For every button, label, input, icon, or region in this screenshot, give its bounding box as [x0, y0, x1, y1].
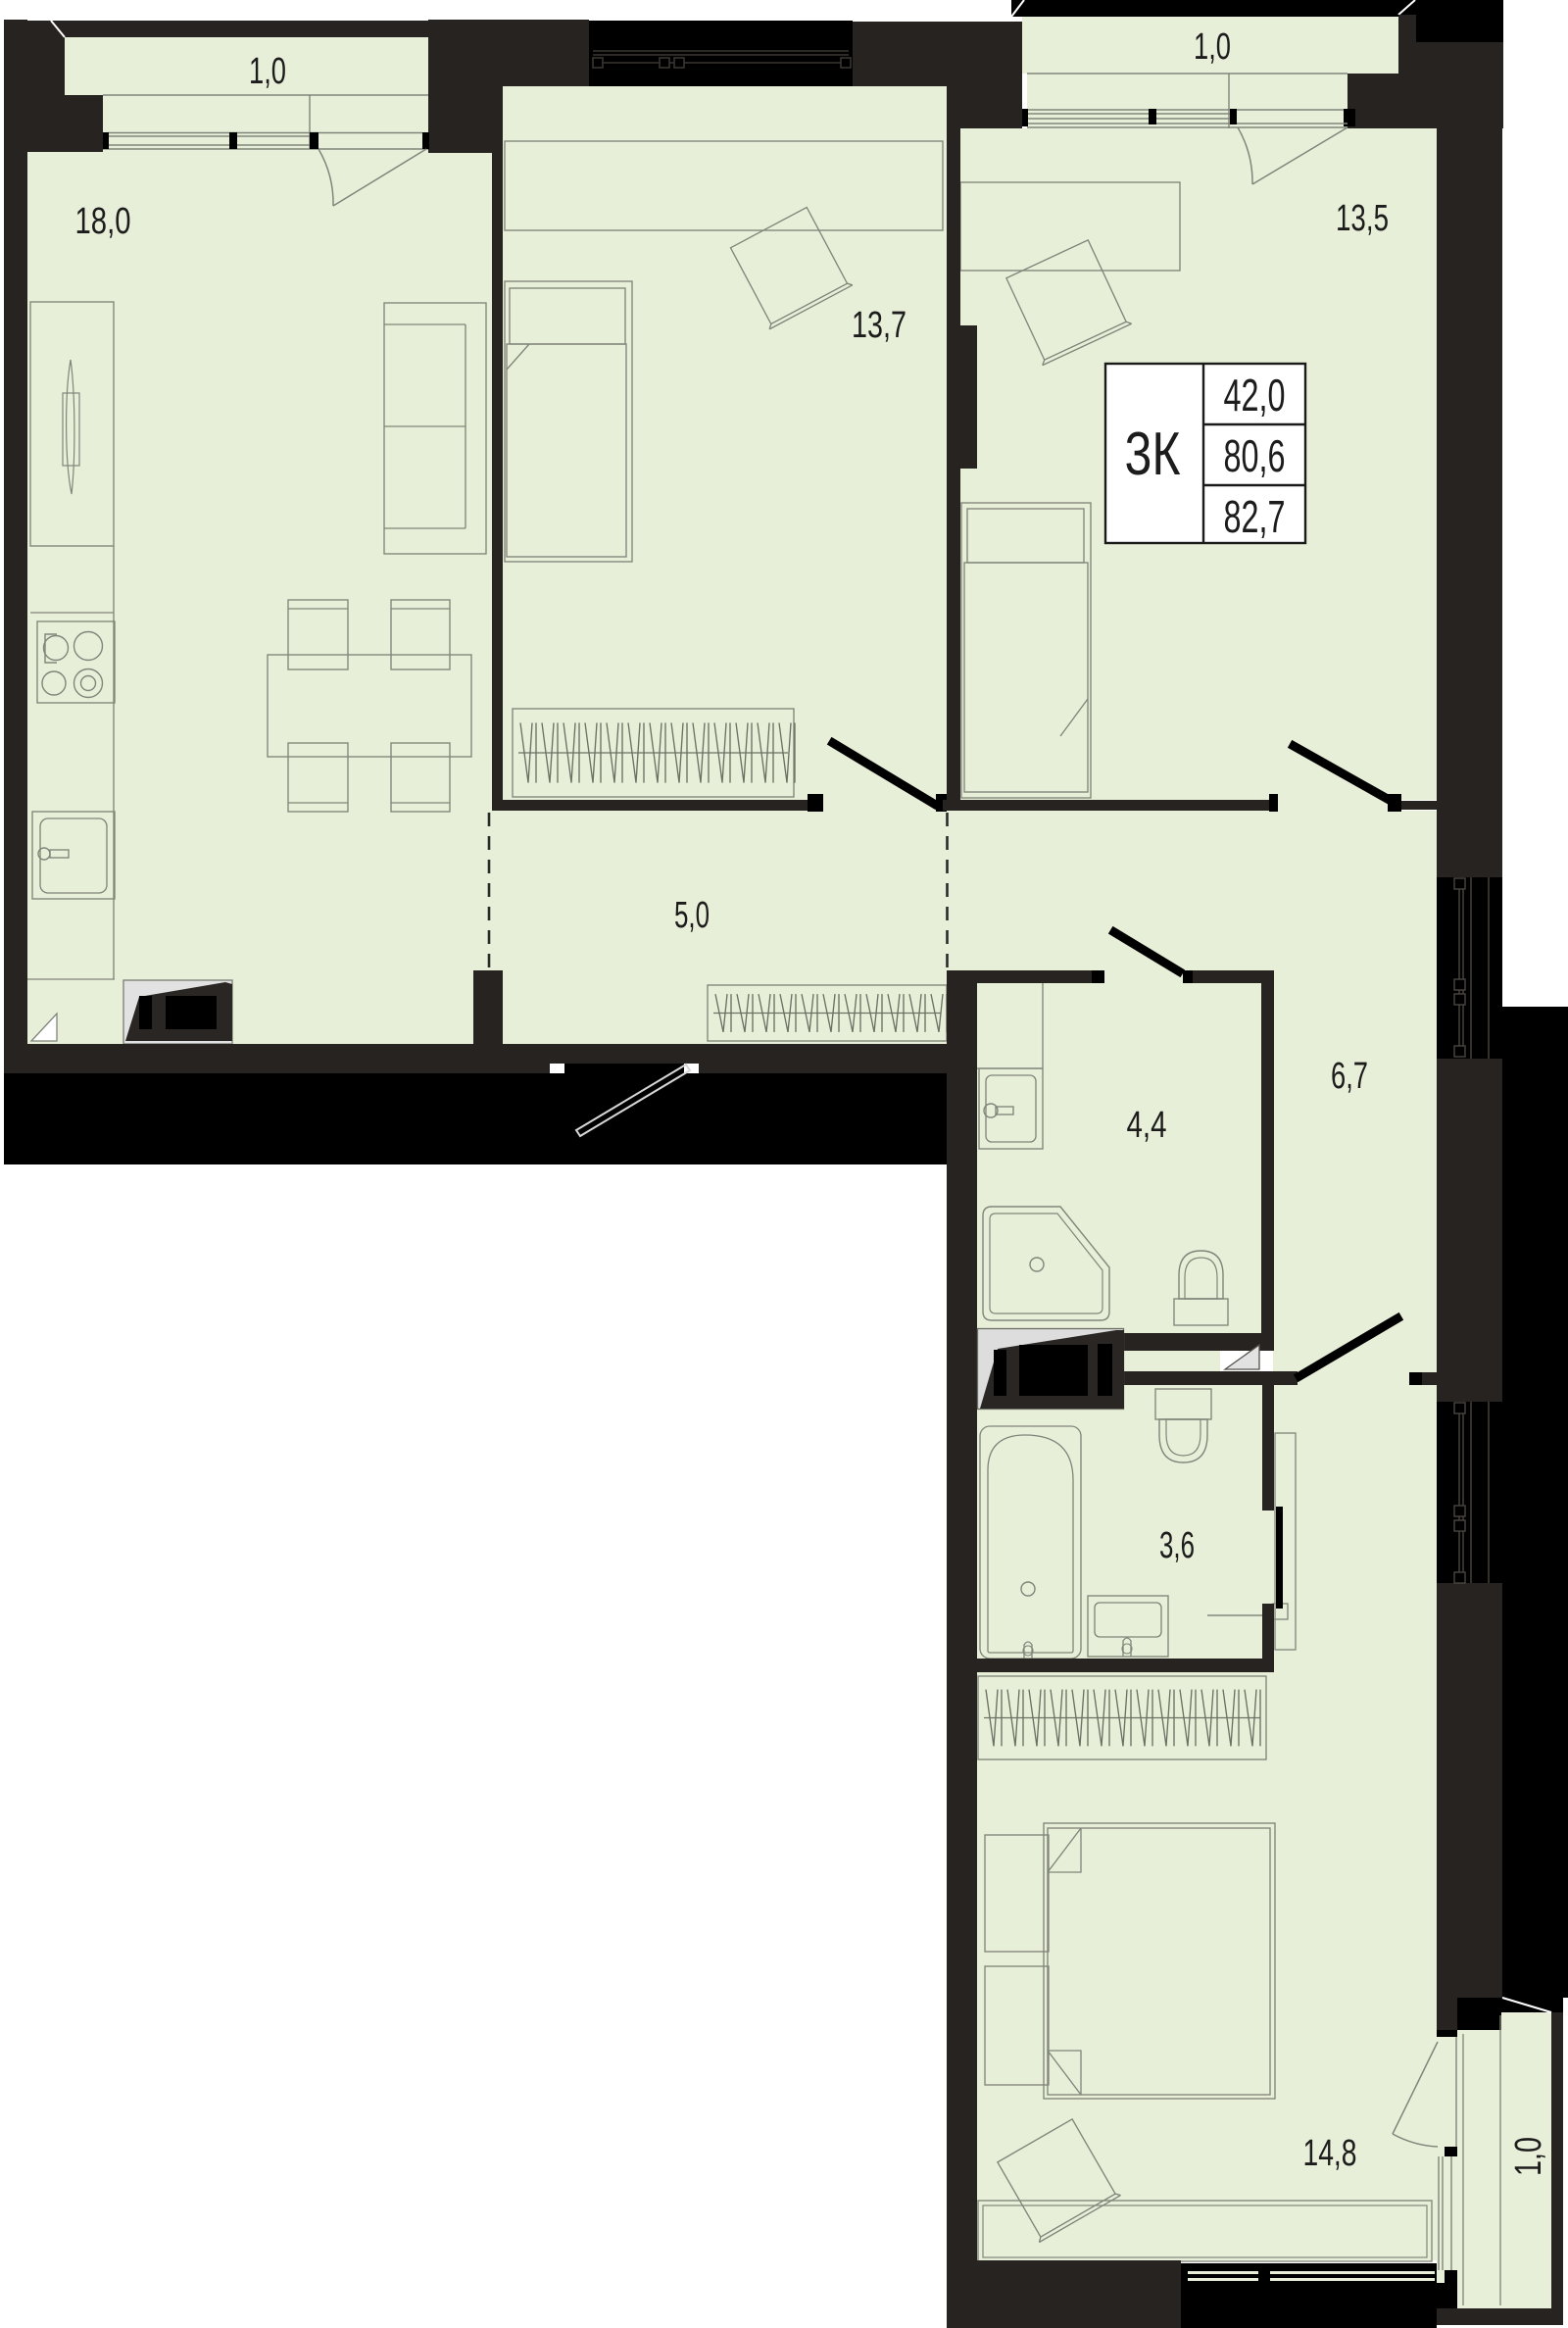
svg-text:82,7: 82,7: [1224, 491, 1286, 542]
svg-text:1,0: 1,0: [249, 51, 286, 92]
svg-text:4,4: 4,4: [1127, 1105, 1167, 1146]
svg-text:1,0: 1,0: [1194, 26, 1231, 68]
svg-text:1,0: 1,0: [1508, 2137, 1549, 2176]
svg-text:18,0: 18,0: [75, 201, 131, 242]
svg-text:13,5: 13,5: [1336, 198, 1389, 239]
svg-text:80,6: 80,6: [1224, 430, 1286, 481]
svg-text:3К: 3К: [1125, 421, 1181, 488]
svg-text:6,7: 6,7: [1331, 1056, 1368, 1097]
svg-text:13,7: 13,7: [852, 305, 906, 346]
svg-text:14,8: 14,8: [1303, 2133, 1357, 2174]
svg-text:3,6: 3,6: [1159, 1525, 1195, 1566]
svg-text:5,0: 5,0: [674, 895, 710, 936]
svg-text:42,0: 42,0: [1224, 370, 1286, 421]
